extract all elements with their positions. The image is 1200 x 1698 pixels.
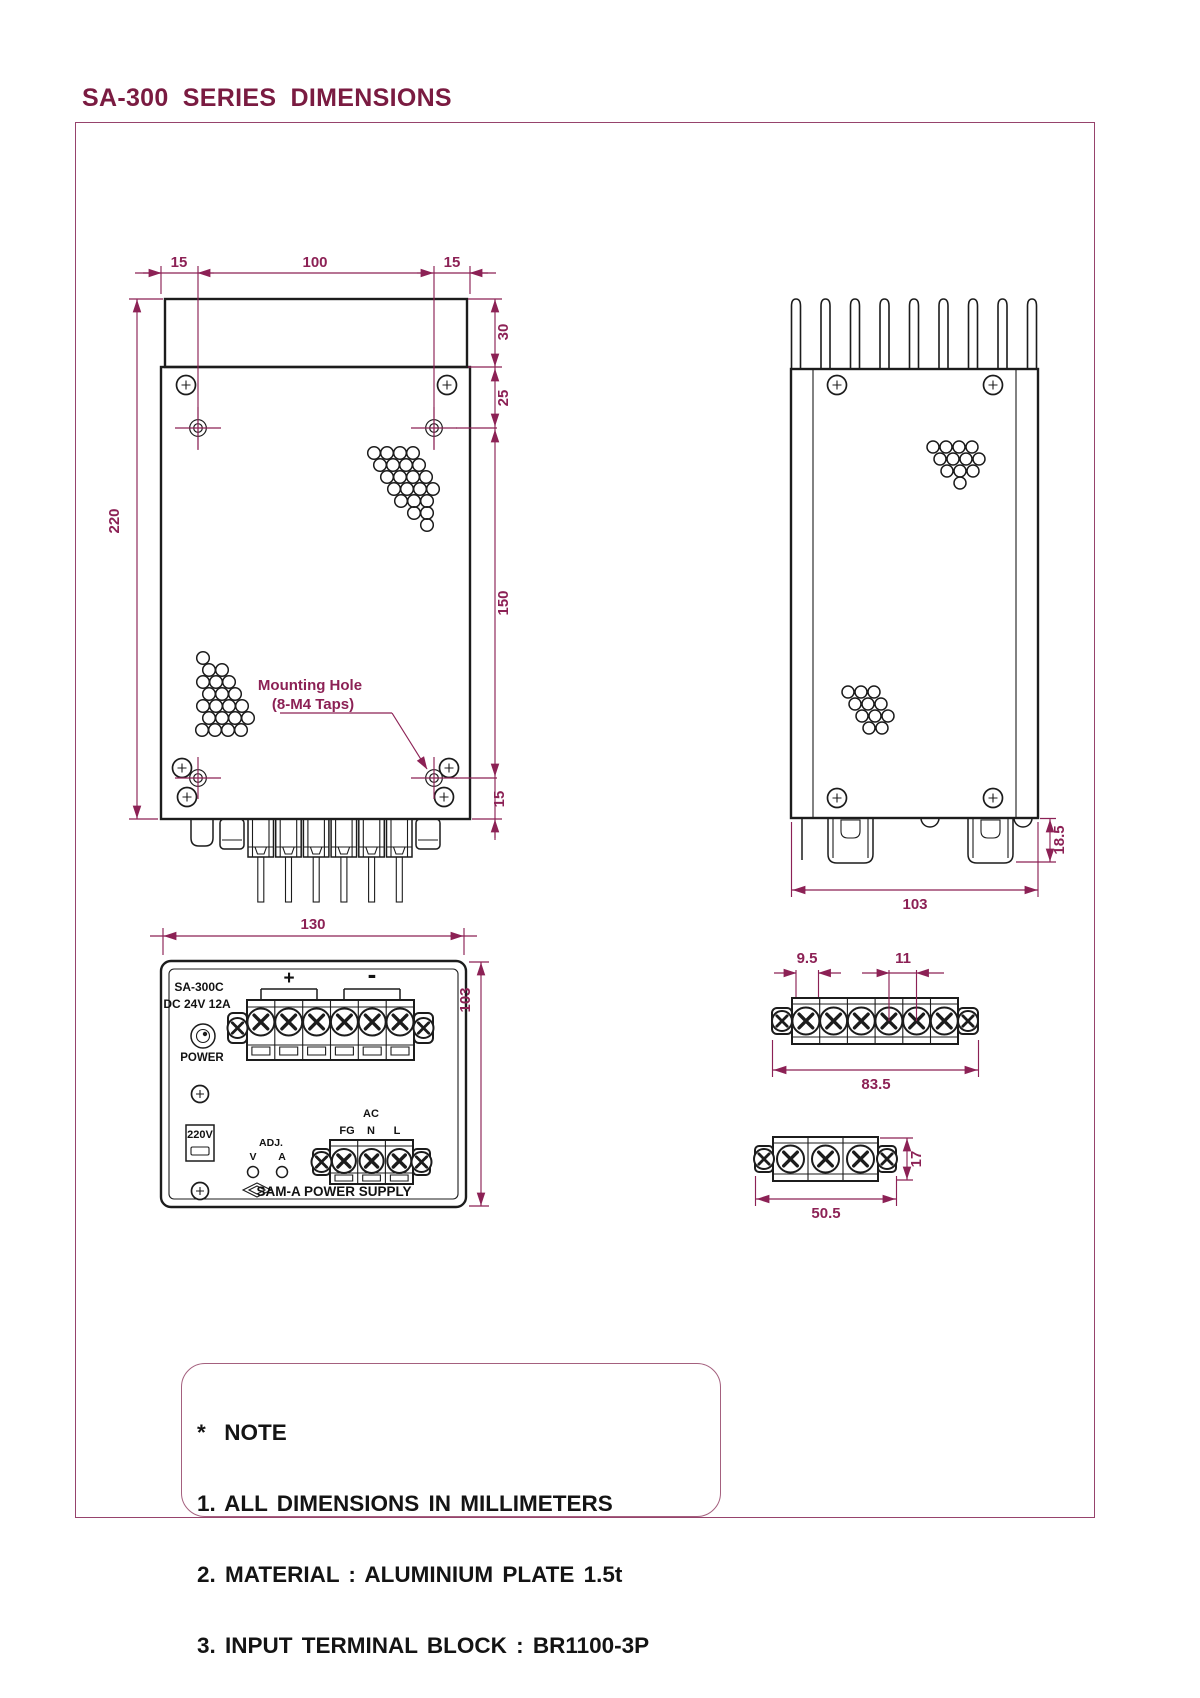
side-vent-holes-upper xyxy=(927,441,985,489)
rating-label: DC 24V 12A xyxy=(163,997,231,1011)
dim-label-103-front: 103 xyxy=(457,987,474,1012)
dim-label-50-5: 50.5 xyxy=(811,1205,840,1222)
dim-label-15-right: 15 xyxy=(444,254,461,271)
top-view-extension-lines xyxy=(129,266,502,819)
l-label: L xyxy=(394,1125,401,1137)
brand-row: SAM-A POWER SUPPLY xyxy=(243,1183,412,1199)
terminal-strip-pins xyxy=(258,857,403,902)
callout-line2: (8-M4 Taps) xyxy=(272,696,354,713)
side-view-fold-lines xyxy=(813,369,1016,818)
end-pitch-dimension: 9.5 xyxy=(774,950,841,997)
dim-label-103-side: 103 xyxy=(902,896,927,913)
v-pot xyxy=(248,1167,259,1178)
height-dimension-220: 220 xyxy=(106,299,137,819)
output-total-width-dimension: 83.5 xyxy=(773,1040,979,1093)
mounting-brackets xyxy=(802,818,1032,863)
polarity-markings: + - xyxy=(261,959,400,1000)
side-view-body xyxy=(791,369,1038,818)
input-terminal-block xyxy=(312,1140,432,1184)
front-view: 130 103 SA-300C DC 24V 12A + - xyxy=(150,916,489,1207)
output-terminal-block xyxy=(228,1000,434,1060)
fg-label: FG xyxy=(339,1125,354,1137)
side-view: 103 18.5 xyxy=(791,299,1068,913)
brand-label: SAM-A POWER SUPPLY xyxy=(256,1184,411,1199)
note-item-2: 2. MATERIAL : ALUMINIUM PLATE 1.5t xyxy=(197,1563,714,1587)
callout-line1: Mounting Hole xyxy=(258,677,362,694)
datasheet-page: SA-300 SERIES DIMENSIONS xyxy=(0,0,1200,1698)
minus-label: - xyxy=(368,959,377,989)
side-view-screws xyxy=(828,376,1003,808)
output-terminal-view: 9.5 11 83.5 xyxy=(772,950,979,1093)
ac-input-labels: AC FG N L xyxy=(339,1108,400,1137)
power-label: POWER xyxy=(180,1052,224,1064)
top-view-terminal-strip xyxy=(191,819,440,902)
a-pot xyxy=(277,1167,288,1178)
dim-label-30: 30 xyxy=(495,324,512,341)
note-box: * NOTE 1. ALL DIMENSIONS IN MILLIMETERS … xyxy=(181,1363,721,1517)
panel-screw-top xyxy=(192,1086,209,1103)
dim-label-18-5: 18.5 xyxy=(1051,825,1068,854)
side-vent-holes-lower xyxy=(842,686,894,734)
dim-label-83-5: 83.5 xyxy=(861,1076,890,1093)
a-adj-label: A xyxy=(278,1151,286,1163)
voltage-label: 220V xyxy=(187,1129,213,1141)
voltage-selector: 220V xyxy=(186,1125,214,1161)
dim-label-9-5: 9.5 xyxy=(797,950,818,967)
bracket-height-dimension: 18.5 xyxy=(1016,819,1068,863)
dim-label-15-left: 15 xyxy=(171,254,188,271)
top-view-body xyxy=(161,367,470,819)
top-view: 15 100 15 220 30 xyxy=(106,254,512,902)
power-led xyxy=(191,1024,215,1048)
model-label: SA-300C xyxy=(174,980,224,994)
right-stacked-dimensions: 30 25 150 15 xyxy=(491,299,512,840)
panel-screw-bottom xyxy=(192,1183,209,1200)
top-view-flange xyxy=(165,299,467,367)
vent-holes-upper xyxy=(368,447,440,532)
dim-label-25: 25 xyxy=(495,390,512,407)
dim-label-11: 11 xyxy=(895,950,911,967)
n-label: N xyxy=(367,1125,375,1137)
input-terminal-view: 50.5 17 xyxy=(754,1137,925,1222)
plus-label: + xyxy=(283,968,294,989)
input-total-width-dimension: 50.5 xyxy=(756,1176,897,1222)
dim-label-100: 100 xyxy=(302,254,327,271)
dim-label-220: 220 xyxy=(106,508,123,533)
dim-label-130: 130 xyxy=(300,916,325,933)
adjustment-pots: ADJ. V A xyxy=(248,1137,288,1178)
v-adj-label: V xyxy=(249,1151,256,1163)
adj-label: ADJ. xyxy=(259,1137,283,1149)
vent-holes-lower xyxy=(196,652,255,737)
top-width-dimension: 15 100 15 xyxy=(135,254,496,273)
mounting-hole-callout: Mounting Hole (8-M4 Taps) xyxy=(258,677,427,769)
front-width-dimension: 130 xyxy=(150,916,477,955)
dim-label-15-bottom: 15 xyxy=(491,791,508,808)
front-height-dimension: 103 xyxy=(457,962,489,1206)
note-item-3: 3. INPUT TERMINAL BLOCK : BR1100-3P xyxy=(197,1634,714,1658)
dim-label-17: 17 xyxy=(908,1151,925,1168)
top-view-screws xyxy=(173,376,459,807)
terminal-strip-blocks xyxy=(248,819,412,857)
mounting-hole-crosshairs xyxy=(175,407,457,799)
note-header: * NOTE xyxy=(197,1421,714,1445)
ac-label: AC xyxy=(363,1108,379,1120)
note-item-1: 1. ALL DIMENSIONS IN MILLIMETERS xyxy=(197,1492,714,1516)
heat-sink-fins xyxy=(792,299,1037,369)
dim-label-150: 150 xyxy=(495,590,512,615)
